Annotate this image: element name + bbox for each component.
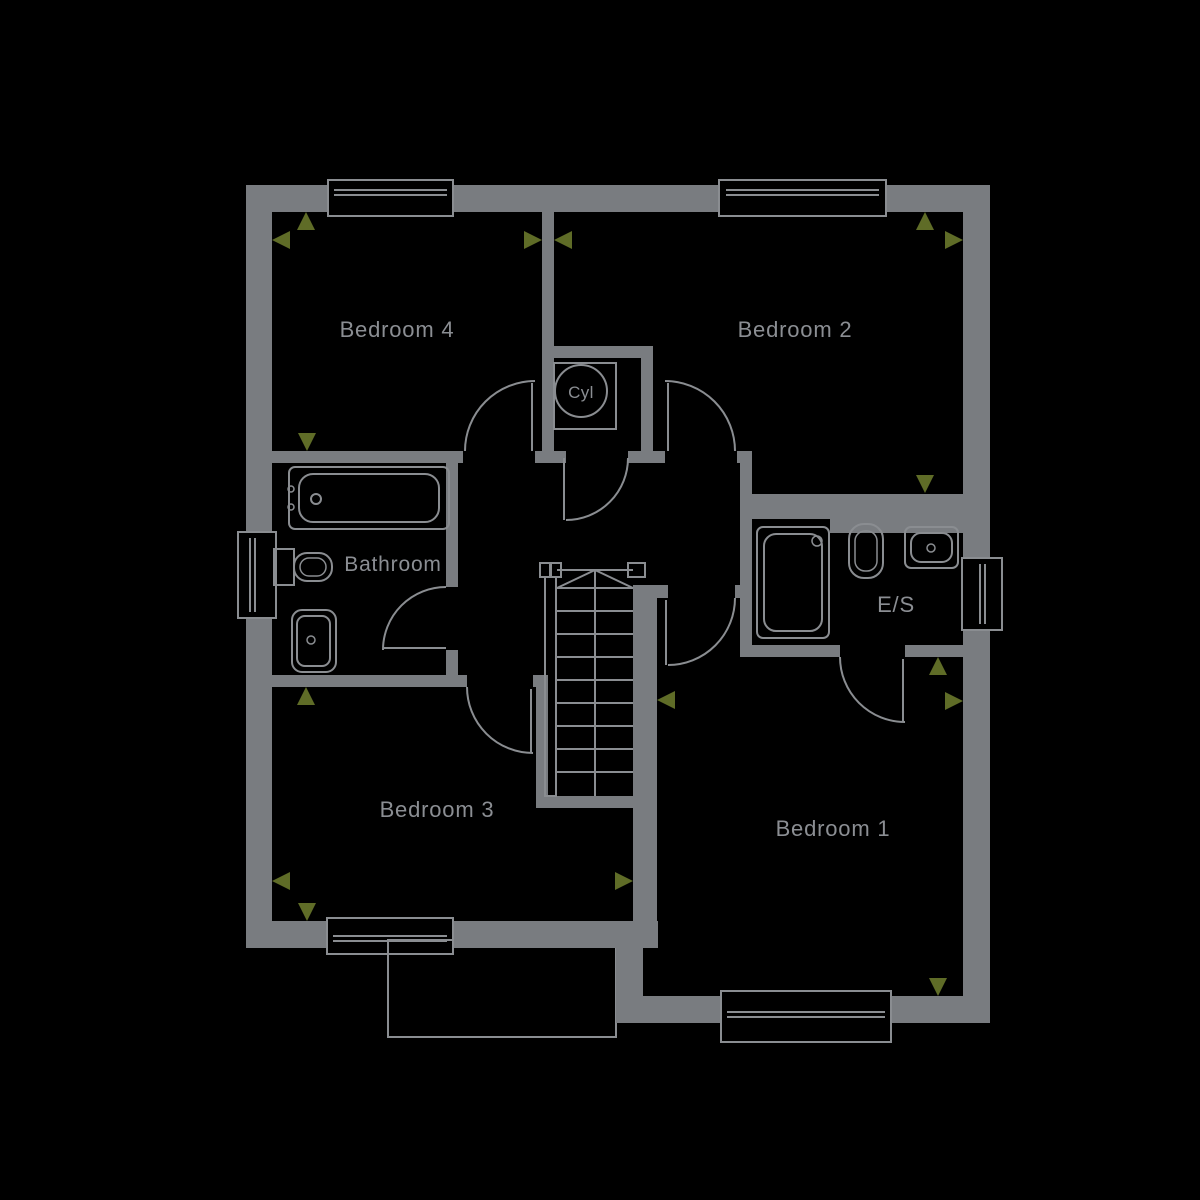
floor-plan-page: Cyl Bedroom 4 Bedroom 2 Bathroom E/S Bed…: [0, 0, 1200, 1200]
bedroom3-arrow-down-icon: [298, 903, 316, 921]
bedroom1-arrow-left-icon: [657, 691, 675, 709]
wall-cyl-right: [641, 346, 653, 463]
wall-bottom-left-1: [246, 921, 327, 948]
stair-newel-post: [540, 563, 550, 577]
bedroom2-arrow-right-icon: [945, 231, 963, 249]
wall-right-2: [963, 630, 990, 1023]
wall-step: [616, 948, 643, 1023]
wall-ensuite-left: [740, 451, 752, 657]
bedroom4-door: [465, 381, 535, 451]
bedroom3-door: [467, 687, 533, 753]
wall-bottom-right-1: [643, 996, 721, 1023]
bedroom4-arrow-left-icon: [272, 231, 290, 249]
bedroom4-arrow-up-icon: [297, 212, 315, 230]
bedroom3-window: [327, 918, 453, 954]
wall-top-1: [246, 185, 328, 212]
bedroom2-arrow-up-icon: [916, 212, 934, 230]
bedroom2-window: [719, 180, 886, 216]
wall-right-1: [963, 212, 990, 558]
wall-bed4-bottom: [272, 451, 463, 463]
wall-top-3: [886, 185, 990, 212]
wall-ensuite-bottom-2: [905, 645, 963, 657]
wall-left-1: [246, 212, 272, 532]
stair-treads: [557, 570, 633, 796]
bathroom-wc: [274, 549, 332, 585]
bedroom1-arrow-up-icon: [929, 657, 947, 675]
bedroom1-door: [666, 598, 735, 665]
wall-bed2-bottom: [752, 494, 963, 519]
bedroom3-arrow-left-icon: [272, 872, 290, 890]
wall-top-2: [453, 185, 719, 212]
bedroom4-label: Bedroom 4: [340, 317, 455, 342]
cylinder-cupboard-door: [564, 458, 628, 520]
ensuite-window: [962, 558, 1002, 630]
wall-left-2: [246, 618, 272, 948]
bedroom3-arrow-right-icon: [615, 872, 633, 890]
wall-bed4-hinge: [535, 451, 554, 463]
wall-bed4-bed2: [542, 212, 554, 463]
bedroom1-arrow-down-icon: [929, 978, 947, 996]
bathroom-door: [383, 587, 446, 650]
bedroom4-arrow-down-icon: [298, 433, 316, 451]
wall-stair-left: [536, 675, 548, 808]
bedroom4-arrow-right-icon: [524, 231, 542, 249]
bath: [288, 467, 449, 529]
wall-cyl-bottom-right: [628, 451, 665, 463]
bathroom-window: [238, 532, 276, 618]
wall-bed1-hinge: [735, 585, 752, 598]
bedroom1-window: [721, 991, 891, 1042]
ensuite-label: E/S: [877, 592, 915, 617]
bedroom2-arrow-left-icon: [554, 231, 572, 249]
bedroom4-window: [328, 180, 453, 216]
wall-bed3-top-1: [272, 675, 467, 687]
bathroom-label: Bathroom: [344, 553, 441, 576]
bath-tap-icon: [311, 494, 321, 504]
floor-plan: Cyl Bedroom 4 Bedroom 2 Bathroom E/S Bed…: [0, 0, 1200, 1200]
shower: [757, 527, 829, 638]
ensuite-fixtures: [757, 524, 958, 638]
wall-ensuite-bottom-1: [752, 645, 840, 657]
wall-bottom-left-2: [453, 921, 658, 948]
cylinder-label: Cyl: [568, 383, 594, 402]
wall-bed1-stub: [657, 585, 668, 598]
wall-stair-bottom: [536, 796, 648, 808]
ensuite-basin: [905, 527, 958, 568]
basin-drain-icon: [307, 636, 315, 644]
basin-drain-icon: [927, 544, 935, 552]
ensuite-door: [840, 657, 905, 722]
wall-cyl-top: [542, 346, 653, 358]
bathroom-basin: [292, 610, 336, 672]
bedroom1-arrow-right-icon: [945, 692, 963, 710]
bedroom2-arrow-down-icon: [916, 475, 934, 493]
wall-bed3-bed1: [633, 585, 657, 948]
cylinder-tank: Cyl: [554, 363, 616, 429]
staircase: [540, 563, 645, 796]
bedroom3-arrow-up-icon: [297, 687, 315, 705]
bedroom2-door: [665, 381, 735, 451]
bedroom2-label: Bedroom 2: [738, 317, 853, 342]
bedroom3-label: Bedroom 3: [380, 797, 495, 822]
wall-bottom-right-2: [891, 996, 990, 1023]
bedroom1-label: Bedroom 1: [776, 816, 891, 841]
